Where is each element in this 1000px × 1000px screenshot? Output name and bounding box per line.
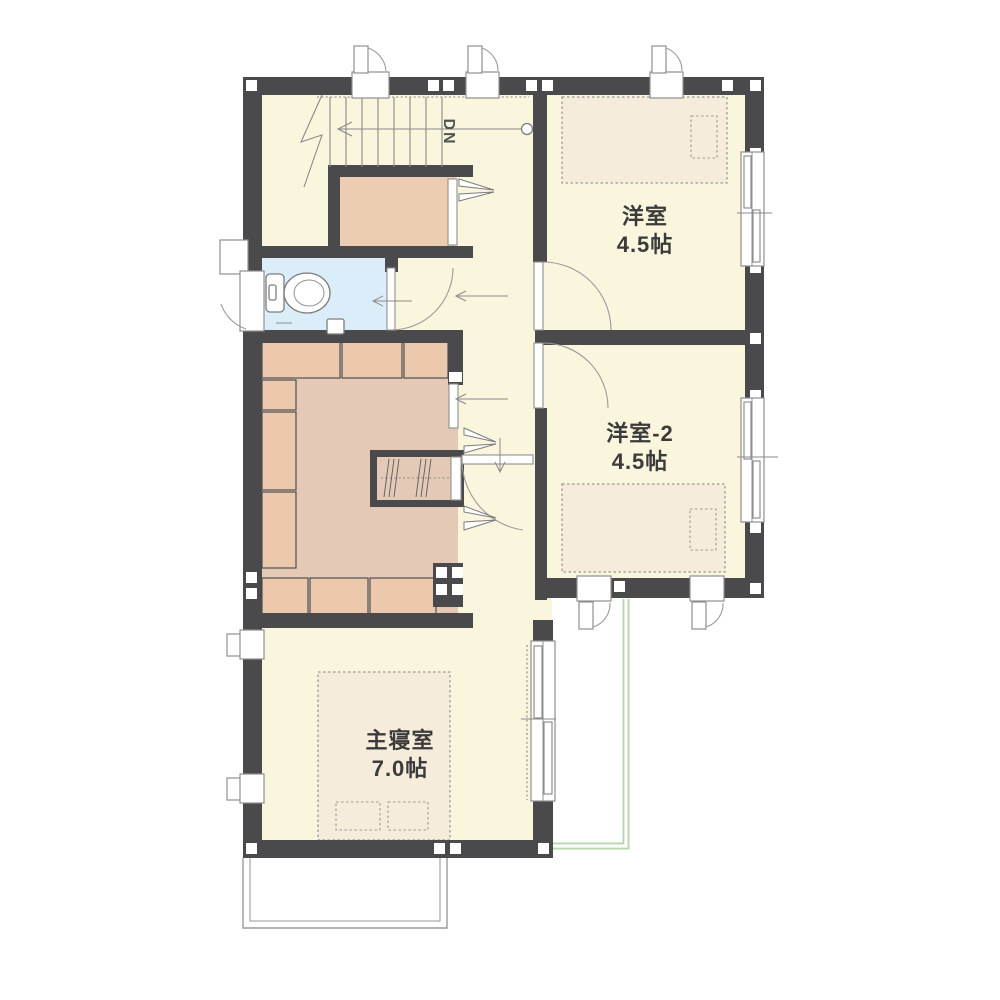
closet-floor: [336, 173, 456, 250]
wic-hanger-box: [370, 450, 464, 507]
floor-plan: 洋室 4.5帖 洋室-2 4.5帖 主寝室 7.0帖 DN: [0, 0, 1000, 1000]
closet-panel: [448, 179, 457, 245]
window-top-1: [352, 46, 389, 98]
room-name: 主寝室: [320, 727, 480, 755]
window-master-left-1: [227, 630, 264, 659]
waste-box: [327, 319, 344, 334]
roof-outline: [553, 599, 626, 846]
window-master-left-2: [227, 774, 264, 803]
bed-yoshitsu2: [562, 484, 725, 572]
room-label-yoshitsu1: 洋室 4.5帖: [565, 203, 725, 259]
floor-plan-drawing: [0, 0, 1000, 1000]
balcony: [243, 858, 447, 928]
room-label-master: 主寝室 7.0帖: [320, 727, 480, 783]
stairs-dn-label: DN: [437, 109, 457, 155]
room-area: 4.5帖: [565, 231, 725, 259]
window-bottom-2: [690, 576, 724, 629]
window-yoshitsu2-right: [741, 398, 764, 522]
window-top-2: [466, 46, 499, 98]
window-top-3: [650, 46, 683, 98]
bed-yoshitsu1: [562, 97, 727, 183]
window-bottom-1: [577, 576, 611, 629]
room-label-yoshitsu2: 洋室-2 4.5帖: [560, 420, 720, 476]
room-name: 洋室: [565, 203, 725, 231]
room-area: 4.5帖: [560, 448, 720, 476]
window-master-right: [527, 641, 555, 801]
room-name: 洋室-2: [560, 420, 720, 448]
room-area: 7.0帖: [320, 755, 480, 783]
window-yoshitsu1-right: [741, 152, 764, 266]
